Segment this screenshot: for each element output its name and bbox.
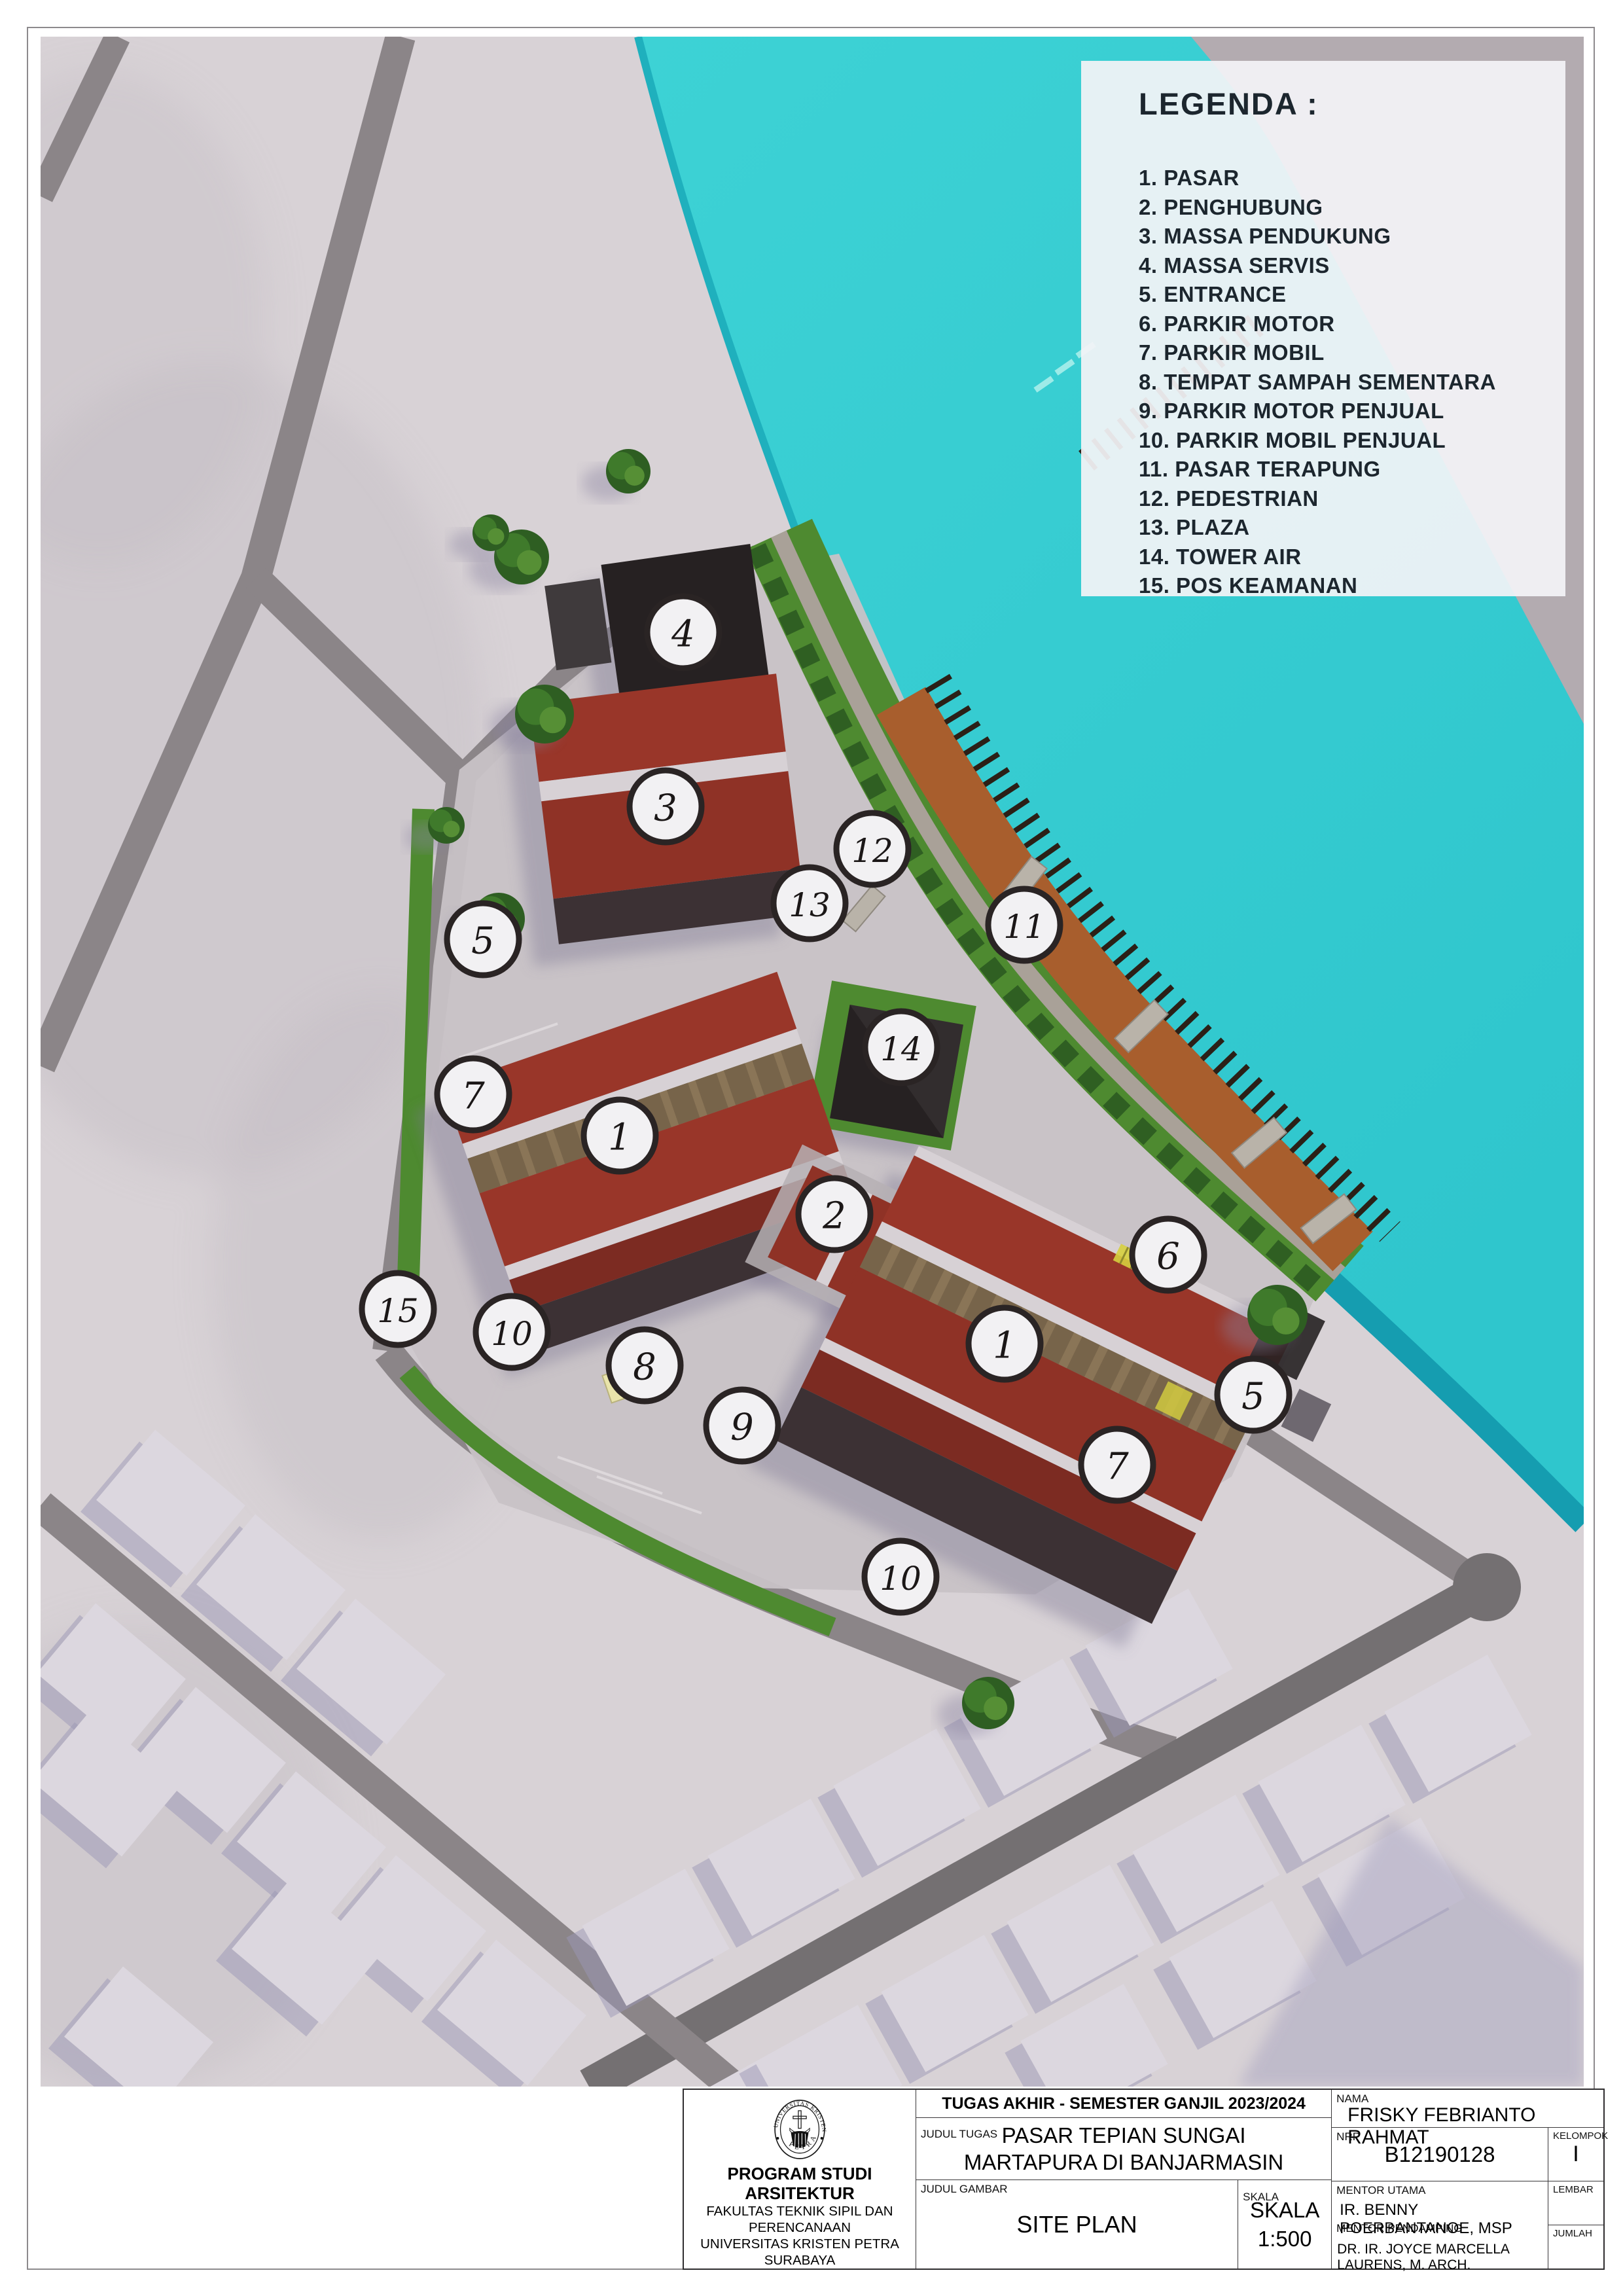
judul-gambar-label: JUDUL GAMBAR	[921, 2183, 1008, 2196]
svg-text:10: 10	[880, 1560, 921, 1598]
student-id-cell: NRP B12190128	[1332, 2128, 1548, 2181]
program-name: PROGRAM STUDI ARSITEKTUR	[684, 2164, 916, 2203]
svg-text:13: 13	[789, 886, 830, 924]
student-id: B12190128	[1385, 2142, 1495, 2167]
svg-text:6: 6	[1156, 1236, 1180, 1278]
legend-item: 2. PENGHUBUNG	[1139, 193, 1546, 223]
plan-marker-1: 1	[584, 1100, 656, 1172]
plan-marker-13: 13	[774, 867, 846, 939]
legend-item: 4. MASSA SERVIS	[1139, 251, 1546, 281]
legend-item: 13. PLAZA	[1139, 513, 1546, 543]
jumlah-label: JUMLAH	[1553, 2228, 1592, 2239]
project-header: TUGAS AKHIR - SEMESTER GANJIL 2023/2024	[916, 2090, 1331, 2117]
svg-text:2: 2	[822, 1195, 846, 1238]
plan-marker-14: 14	[865, 1011, 937, 1083]
project-title-line1: PASAR TEPIAN SUNGAI	[1002, 2122, 1246, 2149]
sheet-count-cell: JUMLAH	[1548, 2225, 1603, 2269]
legend-item: 5. ENTRANCE	[1139, 280, 1546, 310]
legend-item: 8. TEMPAT SAMPAH SEMENTARA	[1139, 368, 1546, 397]
university-name: UNIVERSITAS KRISTEN PETRA	[684, 2236, 916, 2252]
svg-text:4: 4	[671, 613, 695, 656]
legend-item: 7. PARKIR MOBIL	[1139, 338, 1546, 368]
plan-marker-12: 12	[836, 813, 908, 885]
svg-text:5: 5	[1241, 1376, 1265, 1418]
legend-item: 14. TOWER AIR	[1139, 543, 1546, 572]
judul-tugas-label: JUDUL TUGAS	[921, 2121, 997, 2147]
lembar-label: LEMBAR	[1553, 2184, 1594, 2195]
plan-marker-7: 7	[1081, 1429, 1153, 1501]
plan-marker-8: 8	[609, 1329, 681, 1401]
legend-item: 1. PASAR	[1139, 164, 1546, 193]
title-block-institution: UNIVERSITAS KRISTEN PETRA PROGRAM STUDI …	[684, 2090, 916, 2269]
group-value: I	[1573, 2142, 1578, 2167]
legend-item: 10. PARKIR MOBIL PENJUAL	[1139, 426, 1546, 456]
svg-text:14: 14	[880, 1030, 922, 1068]
svg-text:8: 8	[633, 1346, 656, 1389]
plan-marker-4: 4	[647, 596, 719, 668]
svg-text:12: 12	[851, 832, 893, 870]
mentors-cell: MENTOR UTAMA IR. BENNY POERBANTANOE, MSP…	[1332, 2181, 1548, 2269]
svg-text:15: 15	[377, 1292, 419, 1330]
plan-marker-10: 10	[865, 1541, 936, 1613]
plan-marker-5: 5	[447, 903, 519, 975]
plan-marker-3: 3	[630, 770, 702, 842]
plan-marker-1: 1	[969, 1308, 1041, 1380]
presentation-sheet: { "legend": { "title": "LEGENDA :", "ite…	[0, 0, 1623, 2296]
legend-item: 12. PEDESTRIAN	[1139, 484, 1546, 514]
student-name-cell: NAMA FRISKY FEBRIANTO RAHMAT	[1332, 2090, 1603, 2127]
svg-text:5: 5	[471, 920, 495, 963]
svg-text:11: 11	[1003, 908, 1045, 946]
svg-text:7: 7	[461, 1075, 485, 1118]
svg-text:9: 9	[730, 1407, 754, 1449]
drawing-title: SITE PLAN	[1017, 2211, 1137, 2238]
skala-label: SKALA	[1243, 2183, 1279, 2212]
svg-text:1: 1	[608, 1117, 632, 1159]
mentor-utama-label: MENTOR UTAMA	[1336, 2184, 1425, 2197]
legend-item: 3. MASSA PENDUKUNG	[1139, 222, 1546, 251]
plan-marker-10: 10	[476, 1296, 548, 1368]
plan-marker-9: 9	[706, 1390, 778, 1462]
group-cell: KELOMPOK I	[1548, 2128, 1603, 2181]
university-city: SURABAYA	[684, 2252, 916, 2269]
plan-marker-5: 5	[1217, 1359, 1289, 1431]
plan-marker-15: 15	[362, 1273, 434, 1345]
title-block: UNIVERSITAS KRISTEN PETRA PROGRAM STUDI …	[683, 2089, 1605, 2270]
legend-panel: LEGENDA : 1. PASAR2. PENGHUBUNG3. MASSA …	[1081, 61, 1565, 596]
nama-label: NAMA	[1336, 2092, 1368, 2106]
faculty-name: FAKULTAS TEKNIK SIPIL DAN PERENCANAAN	[684, 2203, 916, 2236]
sheet-number-cell: LEMBAR	[1548, 2181, 1603, 2225]
scale-value: 1:500	[1258, 2225, 1312, 2253]
mentor-pendamping-label: MENTOR PENDAMPING	[1336, 2222, 1462, 2235]
project-title-line2: MARTAPURA DI BANJARMASIN	[964, 2149, 1283, 2176]
plan-marker-11: 11	[988, 889, 1060, 961]
legend-item: 15. POS KEAMANAN	[1139, 571, 1546, 601]
drawing-title-cell: JUDUL GAMBAR SITE PLAN	[916, 2180, 1238, 2269]
nrp-label: NRP	[1336, 2130, 1360, 2144]
svg-text:3: 3	[654, 787, 677, 830]
plan-marker-6: 6	[1132, 1219, 1204, 1291]
legend-item: 6. PARKIR MOTOR	[1139, 310, 1546, 339]
kelompok-label: KELOMPOK	[1553, 2130, 1608, 2142]
svg-text:7: 7	[1105, 1446, 1129, 1488]
plan-marker-7: 7	[437, 1058, 509, 1130]
legend-title: LEGENDA :	[1139, 86, 1546, 122]
svg-text:1: 1	[993, 1325, 1016, 1367]
svg-text:10: 10	[491, 1315, 533, 1353]
project-title-cell: JUDUL TUGAS PASAR TEPIAN SUNGAI MARTAPUR…	[916, 2117, 1331, 2179]
legend-list: 1. PASAR2. PENGHUBUNG3. MASSA PENDUKUNG4…	[1139, 164, 1546, 601]
cross-icon	[798, 2111, 801, 2128]
scale-cell: SKALA SKALA 1:500	[1238, 2180, 1331, 2269]
university-logo: UNIVERSITAS KRISTEN PETRA	[730, 2096, 869, 2162]
mentor-pendamping-name: DR. IR. JOYCE MARCELLA LAURENS, M. ARCH.	[1337, 2242, 1548, 2273]
legend-item: 11. PASAR TERAPUNG	[1139, 455, 1546, 484]
plan-marker-2: 2	[798, 1178, 870, 1250]
legend-item: 9. PARKIR MOTOR PENJUAL	[1139, 397, 1546, 426]
